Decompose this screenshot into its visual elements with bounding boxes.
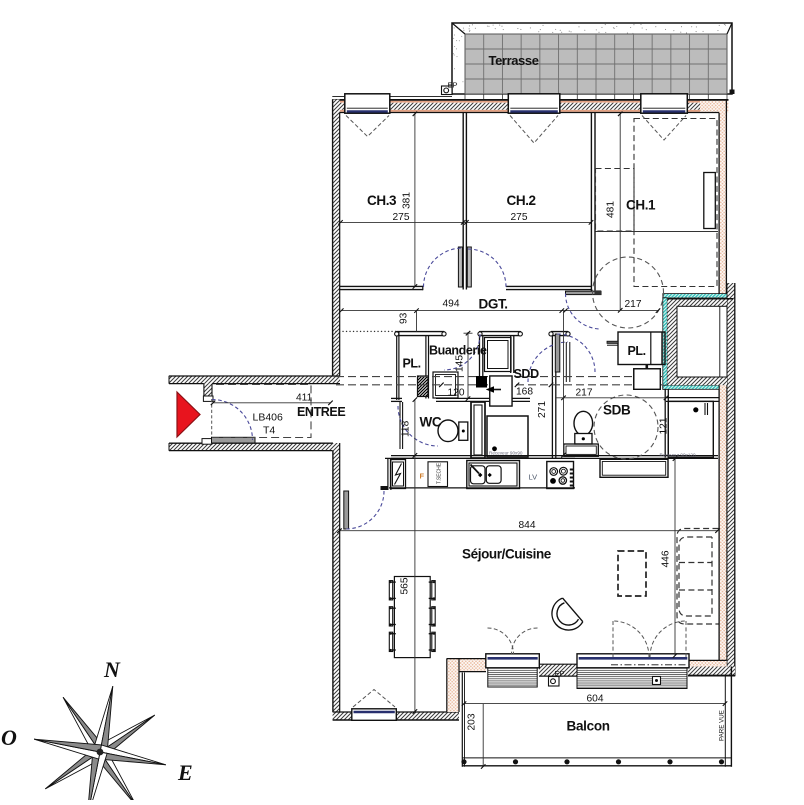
svg-text:217: 217 [625, 299, 642, 310]
svg-text:120: 120 [448, 388, 465, 399]
svg-text:N: N [103, 657, 121, 682]
svg-text:844: 844 [519, 520, 536, 531]
svg-text:Terrasse: Terrasse [489, 53, 539, 68]
svg-text:WC: WC [420, 415, 442, 430]
svg-text:411: 411 [296, 393, 313, 404]
svg-text:381: 381 [402, 192, 413, 209]
svg-text:EP: EP [555, 669, 565, 678]
svg-text:118: 118 [401, 420, 412, 437]
svg-text:494: 494 [443, 299, 460, 310]
svg-text:O: O [1, 725, 17, 750]
svg-text:Receveur 90x120: Receveur 90x120 [660, 453, 696, 458]
svg-text:145: 145 [455, 355, 466, 372]
svg-text:Séjour/Cuisine: Séjour/Cuisine [462, 547, 552, 562]
svg-text:LV: LV [529, 473, 538, 482]
svg-text:CH.3: CH.3 [367, 193, 397, 208]
svg-text:168: 168 [516, 387, 533, 398]
svg-text:T.SECHE: T.SECHE [437, 462, 443, 484]
svg-text:121: 121 [659, 417, 670, 434]
svg-text:EP: EP [448, 81, 458, 90]
svg-text:SDD: SDD [514, 367, 540, 381]
svg-text:275: 275 [393, 212, 410, 223]
svg-text:604: 604 [587, 694, 604, 705]
svg-text:271: 271 [537, 401, 548, 418]
svg-text:PARE VUE: PARE VUE [719, 710, 726, 741]
svg-text:E: E [177, 760, 193, 785]
svg-text:PL.: PL. [403, 357, 421, 371]
svg-text:Balcon: Balcon [567, 719, 610, 734]
svg-text:446: 446 [661, 550, 672, 567]
svg-text:565: 565 [400, 577, 411, 594]
svg-text:217: 217 [576, 388, 593, 399]
svg-text:F: F [420, 472, 425, 481]
svg-text:T4: T4 [263, 425, 275, 437]
svg-text:Receveur 90x90: Receveur 90x90 [489, 451, 523, 456]
svg-text:LB406: LB406 [253, 412, 284, 424]
svg-text:CH.1: CH.1 [626, 198, 656, 213]
svg-text:DGT.: DGT. [479, 297, 508, 312]
svg-text:481: 481 [606, 201, 617, 218]
svg-text:ENTREE: ENTREE [297, 405, 345, 419]
svg-text:93: 93 [399, 312, 410, 324]
svg-text:SDB: SDB [603, 403, 631, 418]
svg-text:PL.: PL. [628, 344, 646, 358]
svg-text:275: 275 [511, 212, 528, 223]
svg-text:CH.2: CH.2 [507, 193, 536, 208]
svg-text:203: 203 [467, 713, 478, 730]
